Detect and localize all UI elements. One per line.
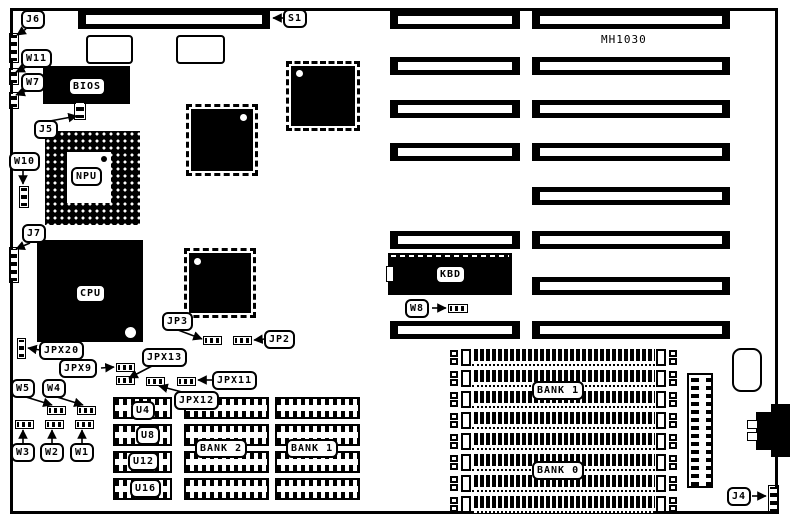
- simm-clip-right-b: [669, 400, 677, 407]
- jpx20-jumper: [17, 338, 26, 359]
- j4-label: J4: [727, 487, 751, 506]
- qfp-chip-2-pin1-dot: [296, 70, 303, 77]
- simm-clip-right-b: [669, 421, 677, 428]
- isa-slot-right-6-opening: [540, 236, 722, 244]
- dip-socket-bank1-4: [275, 478, 360, 500]
- j7-connector: [9, 247, 19, 283]
- simm-latch-right: [656, 454, 666, 471]
- j6-label: J6: [21, 10, 45, 29]
- simm-pins: [472, 433, 655, 450]
- w11-label: W11: [21, 49, 52, 68]
- simm-clip-right-a: [669, 350, 677, 357]
- u8-label: U8: [136, 426, 160, 445]
- isa-slot-right-5: [532, 187, 730, 205]
- bank1-simm-label: BANK 1: [532, 381, 584, 400]
- w10-label: W10: [9, 152, 40, 171]
- w4-label: W4: [42, 379, 66, 398]
- j4-connector: [768, 485, 779, 514]
- simm-clip-left-b: [450, 505, 458, 512]
- isa-slot-left-6: [390, 321, 520, 339]
- simm-clip-left-b: [450, 400, 458, 407]
- dip-socket-bank2-4: [184, 478, 269, 500]
- simm-socket-5: [450, 433, 677, 451]
- simm-socket-1: [450, 349, 677, 367]
- isa-slot-right-8: [532, 321, 730, 339]
- isa-slot-right-4: [532, 143, 730, 161]
- simm-clip-right-b: [669, 484, 677, 491]
- simm-clip-right-a: [669, 371, 677, 378]
- w11-jumper: [9, 68, 19, 85]
- simm-latch-right: [656, 475, 666, 492]
- simm-clip-left-a: [450, 371, 458, 378]
- jpx13-jumper: [116, 376, 135, 385]
- simm-latch-left: [461, 370, 471, 387]
- simm-clip-left-a: [450, 476, 458, 483]
- isa-slot-right-3: [532, 100, 730, 118]
- w3-jumper: [15, 420, 34, 429]
- jp3-label: JP3: [162, 312, 193, 331]
- isa-slot-right-6: [532, 231, 730, 249]
- kbd-chip-pin1-stripe: [391, 255, 509, 257]
- simm-clip-right-b: [669, 379, 677, 386]
- w2-label: W2: [40, 443, 64, 462]
- simm-clip-left-a: [450, 413, 458, 420]
- isa-slot-right-1-opening: [540, 16, 722, 24]
- motherboard-diagram: MH1030 BIOS NPU CPU KBD: [0, 0, 792, 527]
- u4-label: U4: [131, 401, 155, 420]
- cpu-pin1-dot: [125, 327, 136, 338]
- simm-latch-right: [656, 496, 666, 513]
- simm-clip-right-b: [669, 463, 677, 470]
- qfp-chip-1-pin1-dot: [240, 114, 247, 121]
- isa-slot-left-1-opening: [398, 16, 512, 24]
- simm-latch-left: [461, 454, 471, 471]
- j7-label: J7: [22, 224, 46, 243]
- simm-clip-right-a: [669, 455, 677, 462]
- jpx12-jumper: [146, 377, 165, 386]
- simm-clip-right-a: [669, 413, 677, 420]
- simm-latch-right: [656, 391, 666, 408]
- jpx11-jumper: [177, 377, 196, 386]
- isa-slot-left-4-opening: [398, 148, 512, 156]
- simm-latch-right: [656, 433, 666, 450]
- jp2-jumper: [233, 336, 252, 345]
- simm-clip-left-a: [450, 392, 458, 399]
- s1-slot: [78, 10, 270, 29]
- simm-clip-right-a: [669, 392, 677, 399]
- isa-slot-left-3: [390, 100, 520, 118]
- simm-pins: [472, 349, 655, 366]
- simm-latch-left: [461, 475, 471, 492]
- jp2-label: JP2: [264, 330, 295, 349]
- simm-clip-left-b: [450, 442, 458, 449]
- u12-label: U12: [128, 452, 159, 471]
- simm-clip-left-b: [450, 421, 458, 428]
- simm-clip-right-b: [669, 358, 677, 365]
- simm-latch-left: [461, 349, 471, 366]
- w8-jumper: [448, 304, 468, 313]
- simm-latch-right: [656, 370, 666, 387]
- isa-slot-right-2-opening: [540, 62, 722, 70]
- w3-label: W3: [11, 443, 35, 462]
- isa-slot-right-4-opening: [540, 148, 722, 156]
- w5-label: W5: [11, 379, 35, 398]
- simm-clip-left-a: [450, 497, 458, 504]
- keyboard-connector-tab-2: [747, 432, 758, 441]
- simm-clip-right-a: [669, 476, 677, 483]
- oscillator-1: [86, 35, 133, 64]
- simm-clip-right-a: [669, 497, 677, 504]
- simm-clip-left-a: [450, 455, 458, 462]
- simm-clip-right-b: [669, 442, 677, 449]
- isa-slot-left-4: [390, 143, 520, 161]
- simm-clip-left-a: [450, 434, 458, 441]
- simm-latch-right: [656, 412, 666, 429]
- isa-slot-right-5-opening: [540, 192, 722, 200]
- oscillator-2: [176, 35, 225, 64]
- simm-pins: [472, 496, 655, 513]
- isa-slot-left-3-opening: [398, 105, 512, 113]
- isa-slot-right-7-opening: [540, 282, 722, 290]
- j6-connector: [9, 33, 19, 63]
- keyboard-connector-tab-1: [747, 420, 758, 429]
- isa-slot-right-3-opening: [540, 105, 722, 113]
- simm-latch-left: [461, 433, 471, 450]
- bank1-dip-label: BANK 1: [286, 439, 338, 458]
- kbd-label: KBD: [435, 265, 466, 284]
- jpx11-label: JPX11: [212, 371, 257, 390]
- isa-slot-right-2: [532, 57, 730, 75]
- simm-clip-left-b: [450, 463, 458, 470]
- bios-label: BIOS: [68, 77, 106, 96]
- jpx20-label: JPX20: [39, 341, 84, 360]
- isa-slot-left-5-opening: [398, 236, 512, 244]
- s1-slot-opening: [86, 15, 262, 24]
- simm-latch-left: [461, 391, 471, 408]
- npu-label: NPU: [71, 167, 102, 186]
- w4-jumper: [77, 406, 96, 415]
- s1-label: S1: [283, 9, 307, 28]
- dip-socket-bank1-1: [275, 397, 360, 419]
- jpx9-jumper: [116, 363, 135, 372]
- w10-jumper: [19, 186, 29, 208]
- j5-label: J5: [34, 120, 58, 139]
- simm-clip-left-b: [450, 484, 458, 491]
- simm-pins: [472, 412, 655, 429]
- isa-slot-left-2-opening: [398, 62, 512, 70]
- isa-slot-right-8-opening: [540, 326, 722, 334]
- cpu-label: CPU: [75, 284, 106, 303]
- battery-outline: [732, 348, 762, 392]
- bank2-dip-label: BANK 2: [195, 439, 247, 458]
- w5-jumper: [47, 406, 66, 415]
- w8-label: W8: [405, 299, 429, 318]
- w1-jumper: [75, 420, 94, 429]
- isa-slot-left-6-opening: [398, 326, 512, 334]
- w7-label: W7: [21, 73, 45, 92]
- w2-jumper: [45, 420, 64, 429]
- simm-clip-left-b: [450, 358, 458, 365]
- isa-slot-left-1: [390, 11, 520, 29]
- simm-clip-right-b: [669, 505, 677, 512]
- jpx13-label: JPX13: [142, 348, 187, 367]
- simm-latch-left: [461, 412, 471, 429]
- isa-slot-right-1: [532, 11, 730, 29]
- w1-label: W1: [70, 443, 94, 462]
- npu-pin1-dot: [101, 156, 107, 162]
- board-model-text: MH1030: [601, 33, 647, 46]
- simm-latch-left: [461, 496, 471, 513]
- w7-jumper: [9, 92, 19, 109]
- simm-clip-left-b: [450, 379, 458, 386]
- jp3-jumper: [203, 336, 222, 345]
- bank0-simm-label: BANK 0: [532, 461, 584, 480]
- isa-slot-left-2: [390, 57, 520, 75]
- power-pin-header: [687, 373, 713, 488]
- jpx9-label: JPX9: [59, 359, 97, 378]
- qfp-chip-3-pin1-dot: [194, 258, 201, 265]
- simm-socket-8: [450, 496, 677, 514]
- kbd-chip-notch: [386, 266, 394, 282]
- simm-clip-left-a: [450, 350, 458, 357]
- simm-socket-4: [450, 412, 677, 430]
- j5-connector: [74, 98, 86, 120]
- simm-latch-right: [656, 349, 666, 366]
- isa-slot-left-5: [390, 231, 520, 249]
- isa-slot-right-7: [532, 277, 730, 295]
- jpx12-label: JPX12: [174, 391, 219, 410]
- u16-label: U16: [130, 479, 161, 498]
- keyboard-din-connector-body: [771, 404, 790, 457]
- simm-clip-right-a: [669, 434, 677, 441]
